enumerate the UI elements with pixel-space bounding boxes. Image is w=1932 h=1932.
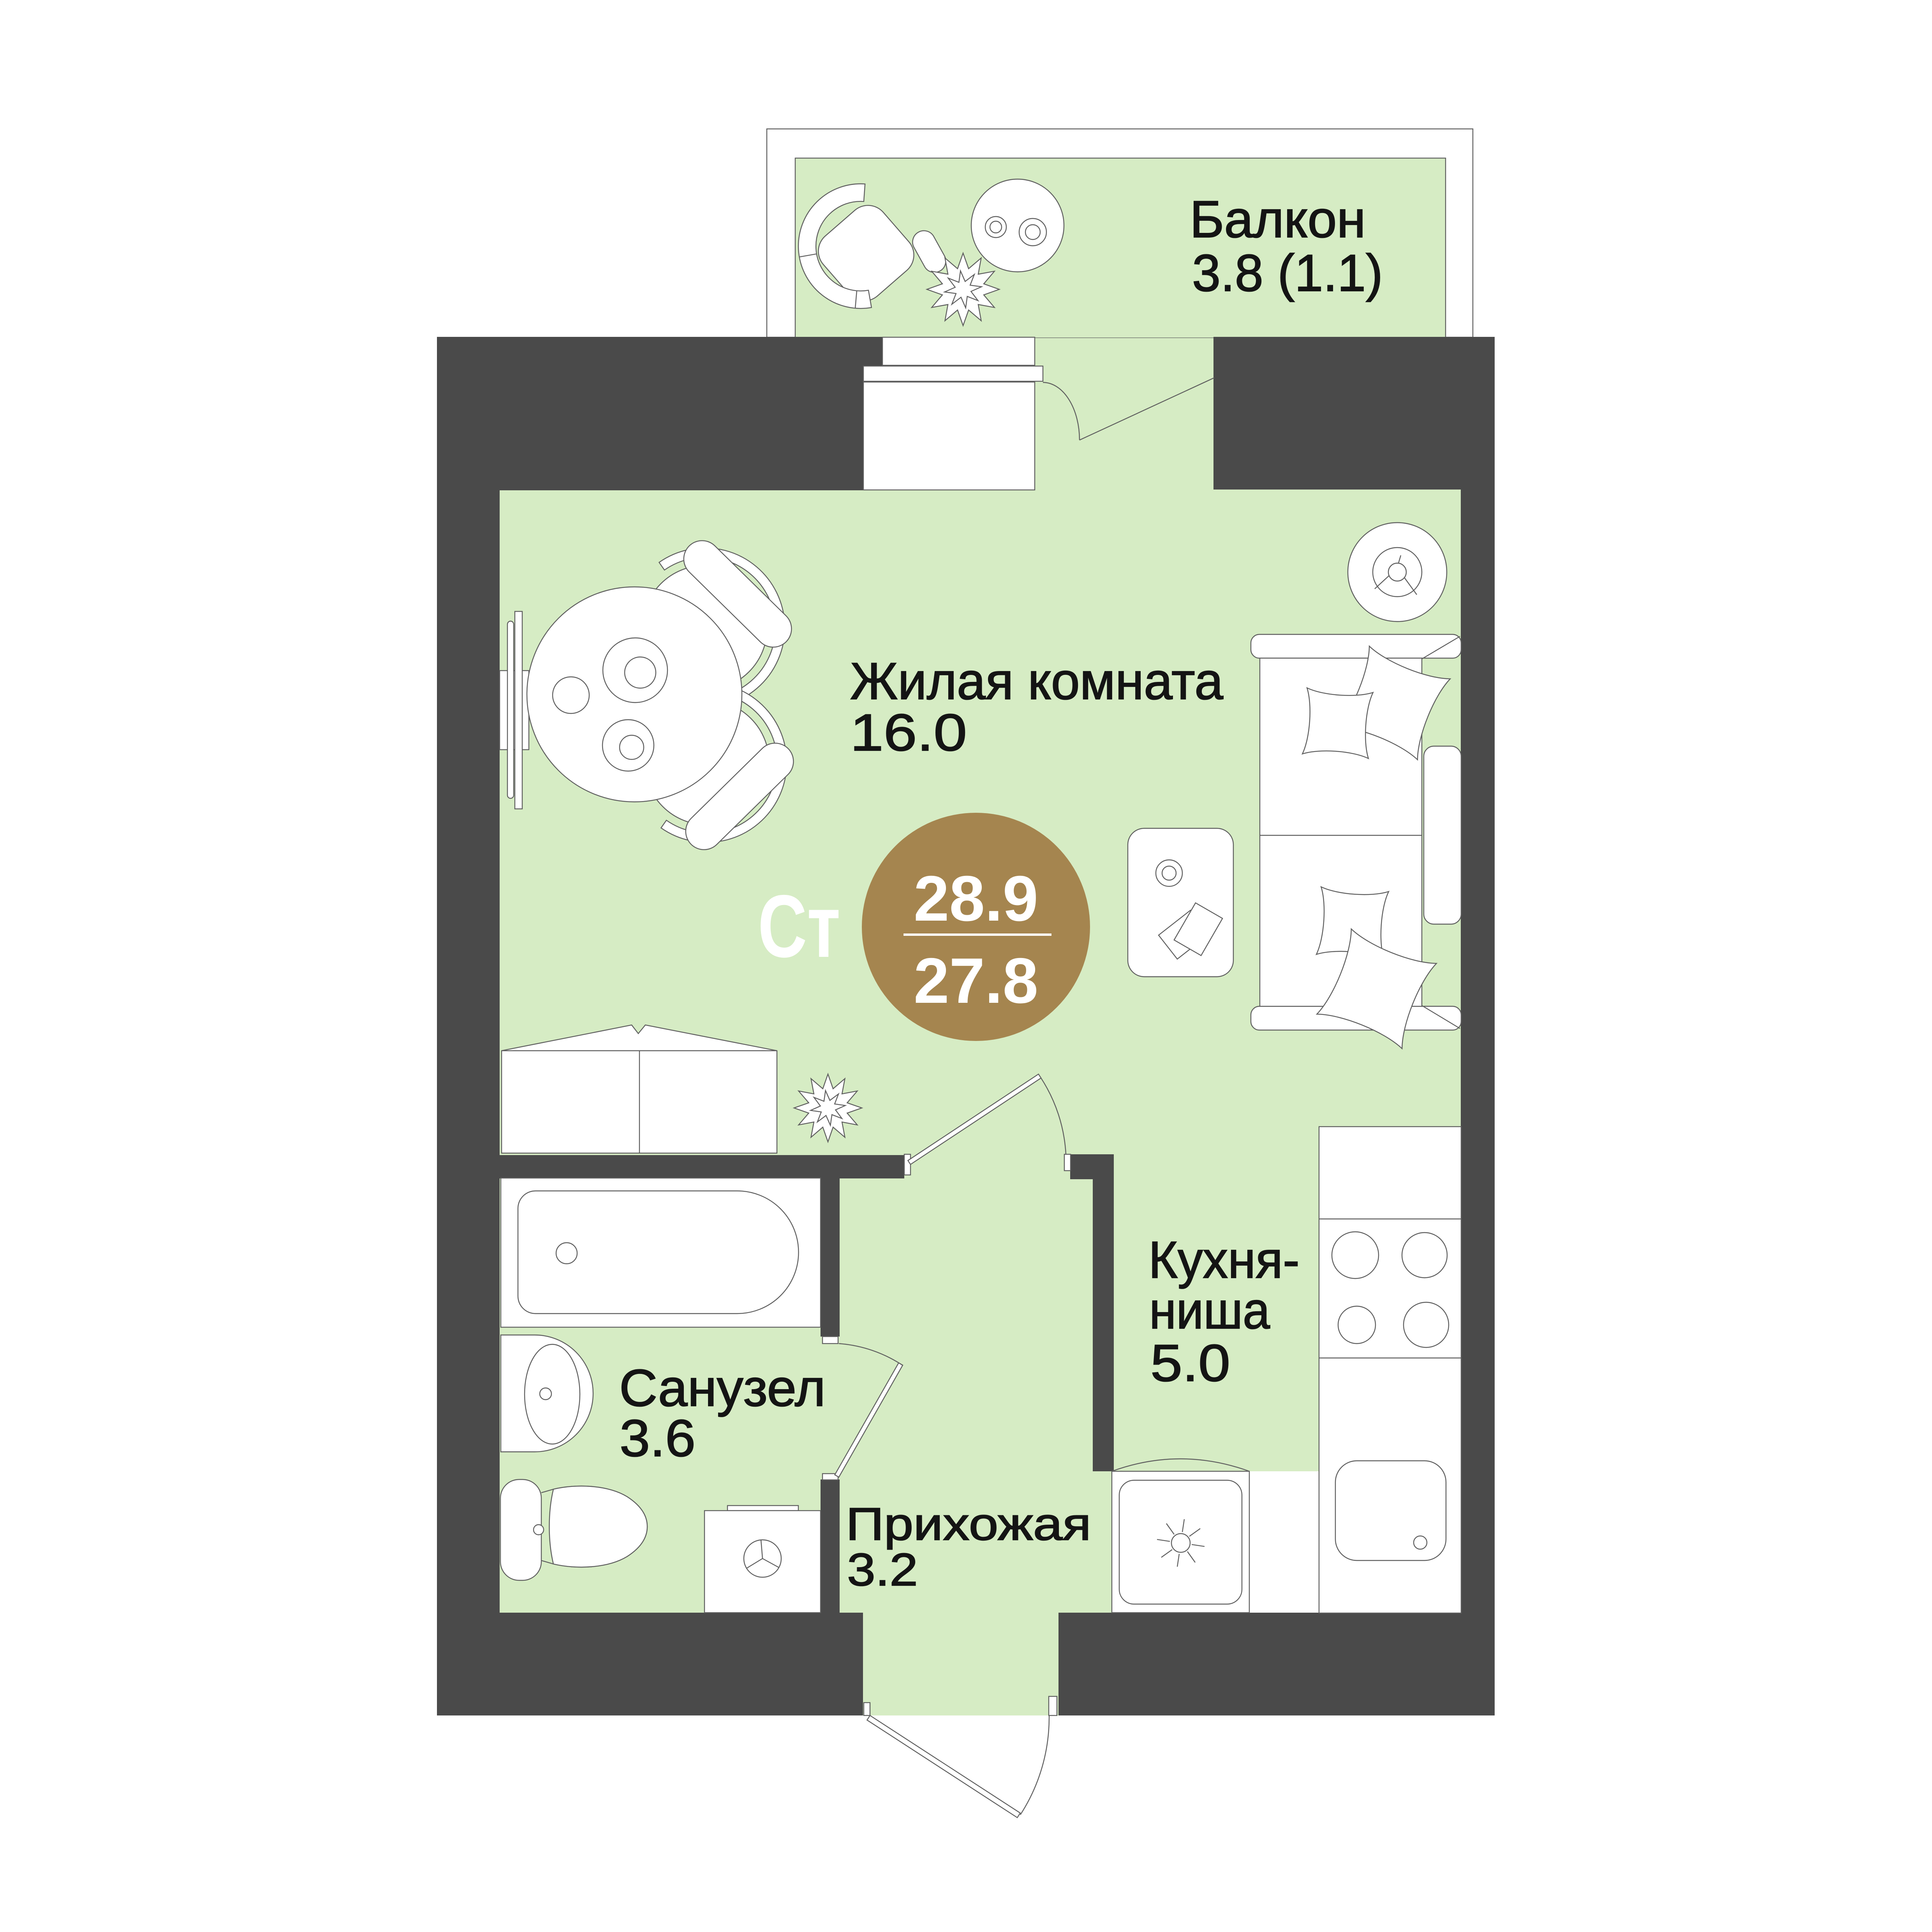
svg-text:Жилая комната: Жилая комната <box>850 652 1223 710</box>
svg-text:28.9: 28.9 <box>914 863 1038 934</box>
svg-text:ниша: ниша <box>1149 1282 1270 1340</box>
svg-text:3.8 (1.1): 3.8 (1.1) <box>1192 244 1383 302</box>
svg-text:27.8: 27.8 <box>914 945 1038 1016</box>
svg-text:3.2: 3.2 <box>847 1544 918 1596</box>
svg-text:Прихожая: Прихожая <box>846 1499 1091 1550</box>
svg-text:Балкон: Балкон <box>1190 190 1366 248</box>
svg-text:Санузел: Санузел <box>619 1359 826 1417</box>
svg-text:Кухня-: Кухня- <box>1148 1231 1300 1289</box>
svg-text:5.0: 5.0 <box>1150 1334 1230 1392</box>
svg-text:Ст: Ст <box>758 877 840 976</box>
svg-text:16.0: 16.0 <box>850 704 967 762</box>
svg-text:3.6: 3.6 <box>620 1409 696 1467</box>
